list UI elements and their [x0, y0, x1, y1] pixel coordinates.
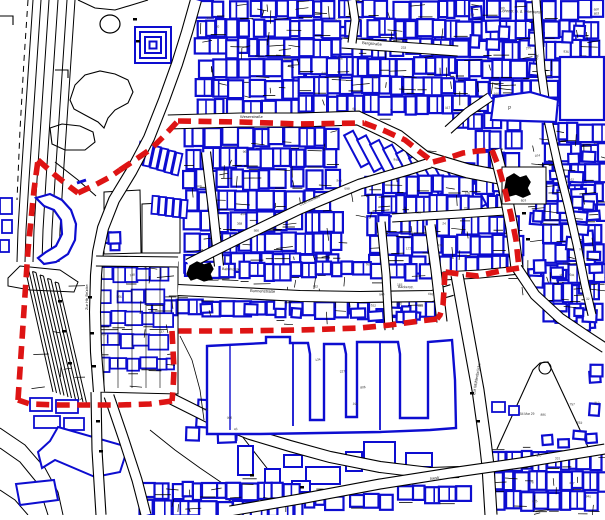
- svg-text:277: 277: [536, 454, 542, 458]
- svg-text:591: 591: [569, 273, 575, 277]
- svg-text:632: 632: [203, 407, 209, 411]
- svg-text:925: 925: [532, 499, 538, 503]
- svg-text:835: 835: [563, 49, 569, 54]
- svg-text:853: 853: [594, 11, 600, 16]
- svg-text:866: 866: [196, 184, 202, 188]
- svg-text:227: 227: [340, 369, 346, 374]
- svg-text:442: 442: [418, 304, 424, 308]
- svg-text:895: 895: [540, 413, 546, 417]
- svg-text:184: 184: [126, 323, 132, 327]
- svg-text:522: 522: [371, 303, 377, 307]
- svg-text:653: 653: [577, 420, 583, 425]
- svg-text:762: 762: [464, 206, 470, 210]
- svg-text:162: 162: [569, 177, 575, 182]
- svg-text:448: 448: [149, 310, 155, 314]
- svg-text:126: 126: [465, 191, 471, 195]
- svg-text:603: 603: [521, 198, 527, 203]
- svg-text:565: 565: [116, 294, 122, 299]
- svg-text:Str.: Str.: [534, 54, 540, 60]
- svg-text:275: 275: [526, 46, 532, 51]
- svg-text:396: 396: [227, 416, 233, 420]
- svg-text:172: 172: [406, 246, 412, 250]
- svg-text:598: 598: [344, 186, 350, 190]
- svg-text:444: 444: [321, 71, 327, 76]
- svg-text:943: 943: [379, 292, 385, 297]
- svg-text:845: 845: [393, 157, 399, 162]
- svg-text:195: 195: [352, 402, 358, 407]
- svg-text:Weserstraße: Weserstraße: [240, 114, 264, 119]
- svg-text:809: 809: [100, 332, 106, 336]
- svg-text:Bahnhofstr.: Bahnhofstr.: [222, 267, 240, 272]
- svg-text:24: 24: [442, 221, 446, 225]
- svg-text:576: 576: [528, 480, 534, 484]
- svg-text:Bäckerstr.: Bäckerstr.: [398, 285, 414, 289]
- svg-text:806: 806: [360, 385, 366, 390]
- svg-text:317: 317: [445, 106, 451, 110]
- svg-text:Bunnenstraße: Bunnenstraße: [250, 288, 276, 294]
- svg-text:233: 233: [401, 46, 407, 50]
- svg-text:134: 134: [315, 357, 321, 362]
- svg-text:866: 866: [254, 229, 260, 233]
- svg-text:800: 800: [396, 302, 402, 306]
- svg-text:43: 43: [234, 427, 238, 431]
- svg-text:553: 553: [366, 262, 372, 266]
- svg-text:125: 125: [415, 210, 421, 215]
- svg-text:974: 974: [535, 153, 541, 158]
- svg-text:938: 938: [579, 247, 585, 251]
- svg-text:138: 138: [129, 273, 135, 278]
- svg-text:698: 698: [206, 16, 212, 20]
- svg-text:943: 943: [336, 179, 342, 183]
- svg-text:417: 417: [569, 481, 575, 486]
- svg-text:450: 450: [240, 212, 246, 217]
- svg-text:377: 377: [335, 18, 341, 22]
- svg-text:862: 862: [313, 284, 319, 289]
- svg-text:54 Mar 29: 54 Mar 29: [520, 412, 535, 416]
- svg-text:210: 210: [494, 92, 500, 96]
- svg-text:978: 978: [437, 243, 443, 248]
- svg-text:964: 964: [243, 150, 249, 154]
- svg-text:Zur Hb Brücke: Zur Hb Brücke: [84, 283, 89, 310]
- svg-text:682: 682: [428, 292, 434, 296]
- svg-text:498: 498: [563, 262, 569, 266]
- svg-text:537: 537: [159, 329, 165, 334]
- svg-text:32: 32: [586, 297, 590, 301]
- svg-text:840: 840: [586, 494, 592, 498]
- svg-text:757: 757: [570, 402, 576, 406]
- svg-text:472: 472: [469, 13, 475, 17]
- svg-text:288: 288: [337, 56, 343, 61]
- svg-text:16: 16: [559, 273, 563, 277]
- svg-text:522: 522: [372, 75, 378, 79]
- svg-text:312: 312: [594, 401, 600, 405]
- svg-text:368: 368: [237, 222, 243, 226]
- svg-text:20: 20: [216, 25, 220, 29]
- svg-text:331: 331: [555, 456, 561, 460]
